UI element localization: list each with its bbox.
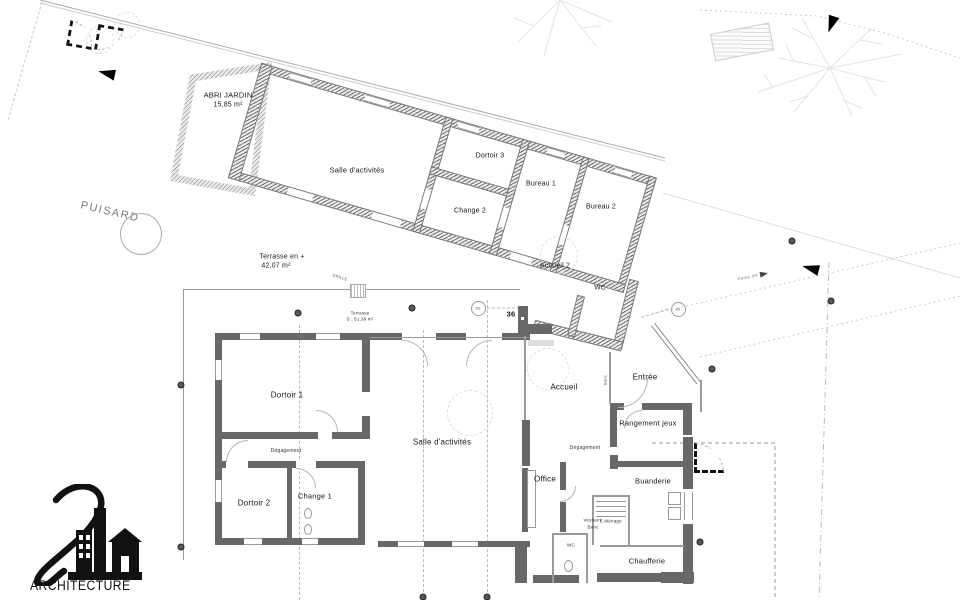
survey-dot: [484, 594, 491, 600]
window: [398, 541, 424, 547]
survey-dot: [420, 594, 427, 600]
door-opening: [362, 392, 370, 416]
survey-dot: [697, 539, 704, 546]
survey-dot: [178, 382, 185, 389]
window: [244, 538, 262, 545]
glazing-line: [700, 380, 702, 412]
wall-segment: [597, 573, 667, 582]
step-line: [528, 340, 554, 346]
room-label-wc: WC: [567, 543, 575, 548]
room-label-rangement: Rangement jeux: [619, 419, 676, 428]
floor-circle: [447, 390, 493, 436]
room-label-wc-upper: WC: [594, 285, 605, 292]
partition-line: [552, 533, 554, 583]
room-label-office: Office: [534, 475, 556, 484]
terrace-lower-area: S : 51,38 m²: [347, 317, 374, 322]
glazing-line: [370, 337, 530, 338]
door-opening: [509, 252, 532, 265]
room-label-abri-jardin: ABRI JARDIN: [204, 91, 253, 100]
door-opening: [287, 187, 314, 201]
window: [684, 492, 693, 520]
terrace-lower-label: Terrasse: [351, 311, 370, 316]
partition-line: [592, 495, 630, 497]
door-opening: [420, 189, 431, 210]
survey-dot: [709, 366, 716, 373]
window: [316, 333, 340, 340]
wall-segment: [358, 468, 365, 545]
room-label-accueil: Accueil: [550, 383, 577, 392]
room-label-degagement2: Dégagement: [570, 445, 601, 451]
room-label-salle-upper: Salle d'activités: [330, 166, 385, 175]
wall-segment: [560, 502, 566, 532]
stair-line: [596, 501, 626, 502]
room-label-change2: Change 2: [454, 208, 486, 215]
window: [452, 541, 478, 547]
glazing-line: [524, 336, 526, 422]
partition-line: [586, 533, 588, 583]
appliance: [668, 507, 681, 520]
room-label-lmenage: L.Ménage: [600, 519, 622, 524]
room-label-vestiaire-banc: Banc: [587, 525, 598, 530]
wall-segment: [515, 541, 527, 583]
room-label-buanderie: Buanderie: [635, 477, 671, 486]
wall-segment: [287, 468, 292, 545]
wall-segment: [430, 168, 514, 198]
window: [240, 333, 260, 340]
logo-architecture-label: ARCHITECTURE: [30, 578, 131, 593]
room-label-bureau2: Bureau 2: [586, 204, 616, 211]
room-label-dortoir3: Dortoir 3: [476, 153, 505, 160]
survey-dot: [178, 544, 185, 551]
wall-segment: [533, 575, 579, 583]
window: [302, 538, 318, 545]
partition-line: [600, 545, 684, 547]
wall-segment: [610, 403, 617, 447]
terrace-upper-label: Terrasse en +: [259, 254, 304, 261]
room-label-bureau1: Bureau 1: [526, 181, 556, 188]
partition-line: [552, 533, 588, 535]
survey-dot: [828, 298, 835, 305]
wall-segment: [683, 437, 693, 489]
logo-2l-icon: [28, 484, 158, 586]
jd-label: JD: [675, 307, 680, 312]
partition-line: [628, 495, 630, 545]
wall-segment: [332, 432, 370, 439]
door-opening: [371, 212, 402, 227]
room-area-abri-jardin: 15,85 m²: [213, 102, 242, 109]
jd-label: JD: [475, 306, 480, 311]
partition-line: [609, 352, 611, 404]
toilet: [304, 508, 312, 519]
wall-segment: [610, 455, 618, 469]
appliance: [668, 492, 681, 505]
wall-segment: [522, 420, 530, 466]
wall-segment: [215, 432, 318, 439]
survey-dot: [295, 310, 302, 317]
room-label-entree: Entrée: [633, 373, 658, 382]
wall-segment: [683, 403, 692, 435]
room-label-salle-main: Salle d'activités: [413, 438, 471, 447]
door-opening: [498, 207, 509, 228]
banc-label: Banc: [603, 375, 608, 385]
marker-36-square: [520, 316, 525, 321]
window: [215, 480, 222, 502]
room-label-change1: Change 1: [298, 492, 332, 501]
room-label-accueil2: Accueil 2: [540, 263, 570, 270]
room-label-dortoir2: Dortoir 2: [238, 499, 270, 508]
stair-line: [596, 506, 626, 507]
wall-segment: [362, 333, 370, 438]
room-label-dortoir1: Dortoir 1: [271, 391, 303, 400]
marker-36-label: 36: [507, 310, 516, 319]
floor-plan: PUISARD GRILLE: [0, 0, 960, 600]
stair-line: [596, 511, 626, 512]
room-label-chaufferie: Chaufferie: [629, 557, 665, 566]
terrace-upper-area: 42,07 m²: [261, 263, 290, 270]
survey-dot: [409, 305, 416, 312]
room-label-degagement1: Dégagement: [271, 448, 302, 454]
wall-segment: [215, 333, 370, 340]
toilet: [564, 560, 573, 572]
toilet: [304, 524, 312, 535]
wall-segment: [215, 538, 365, 545]
wall-segment: [618, 461, 684, 467]
door-opening: [226, 461, 248, 468]
survey-dot: [789, 238, 796, 245]
window: [215, 360, 222, 380]
door-opening: [296, 461, 316, 468]
